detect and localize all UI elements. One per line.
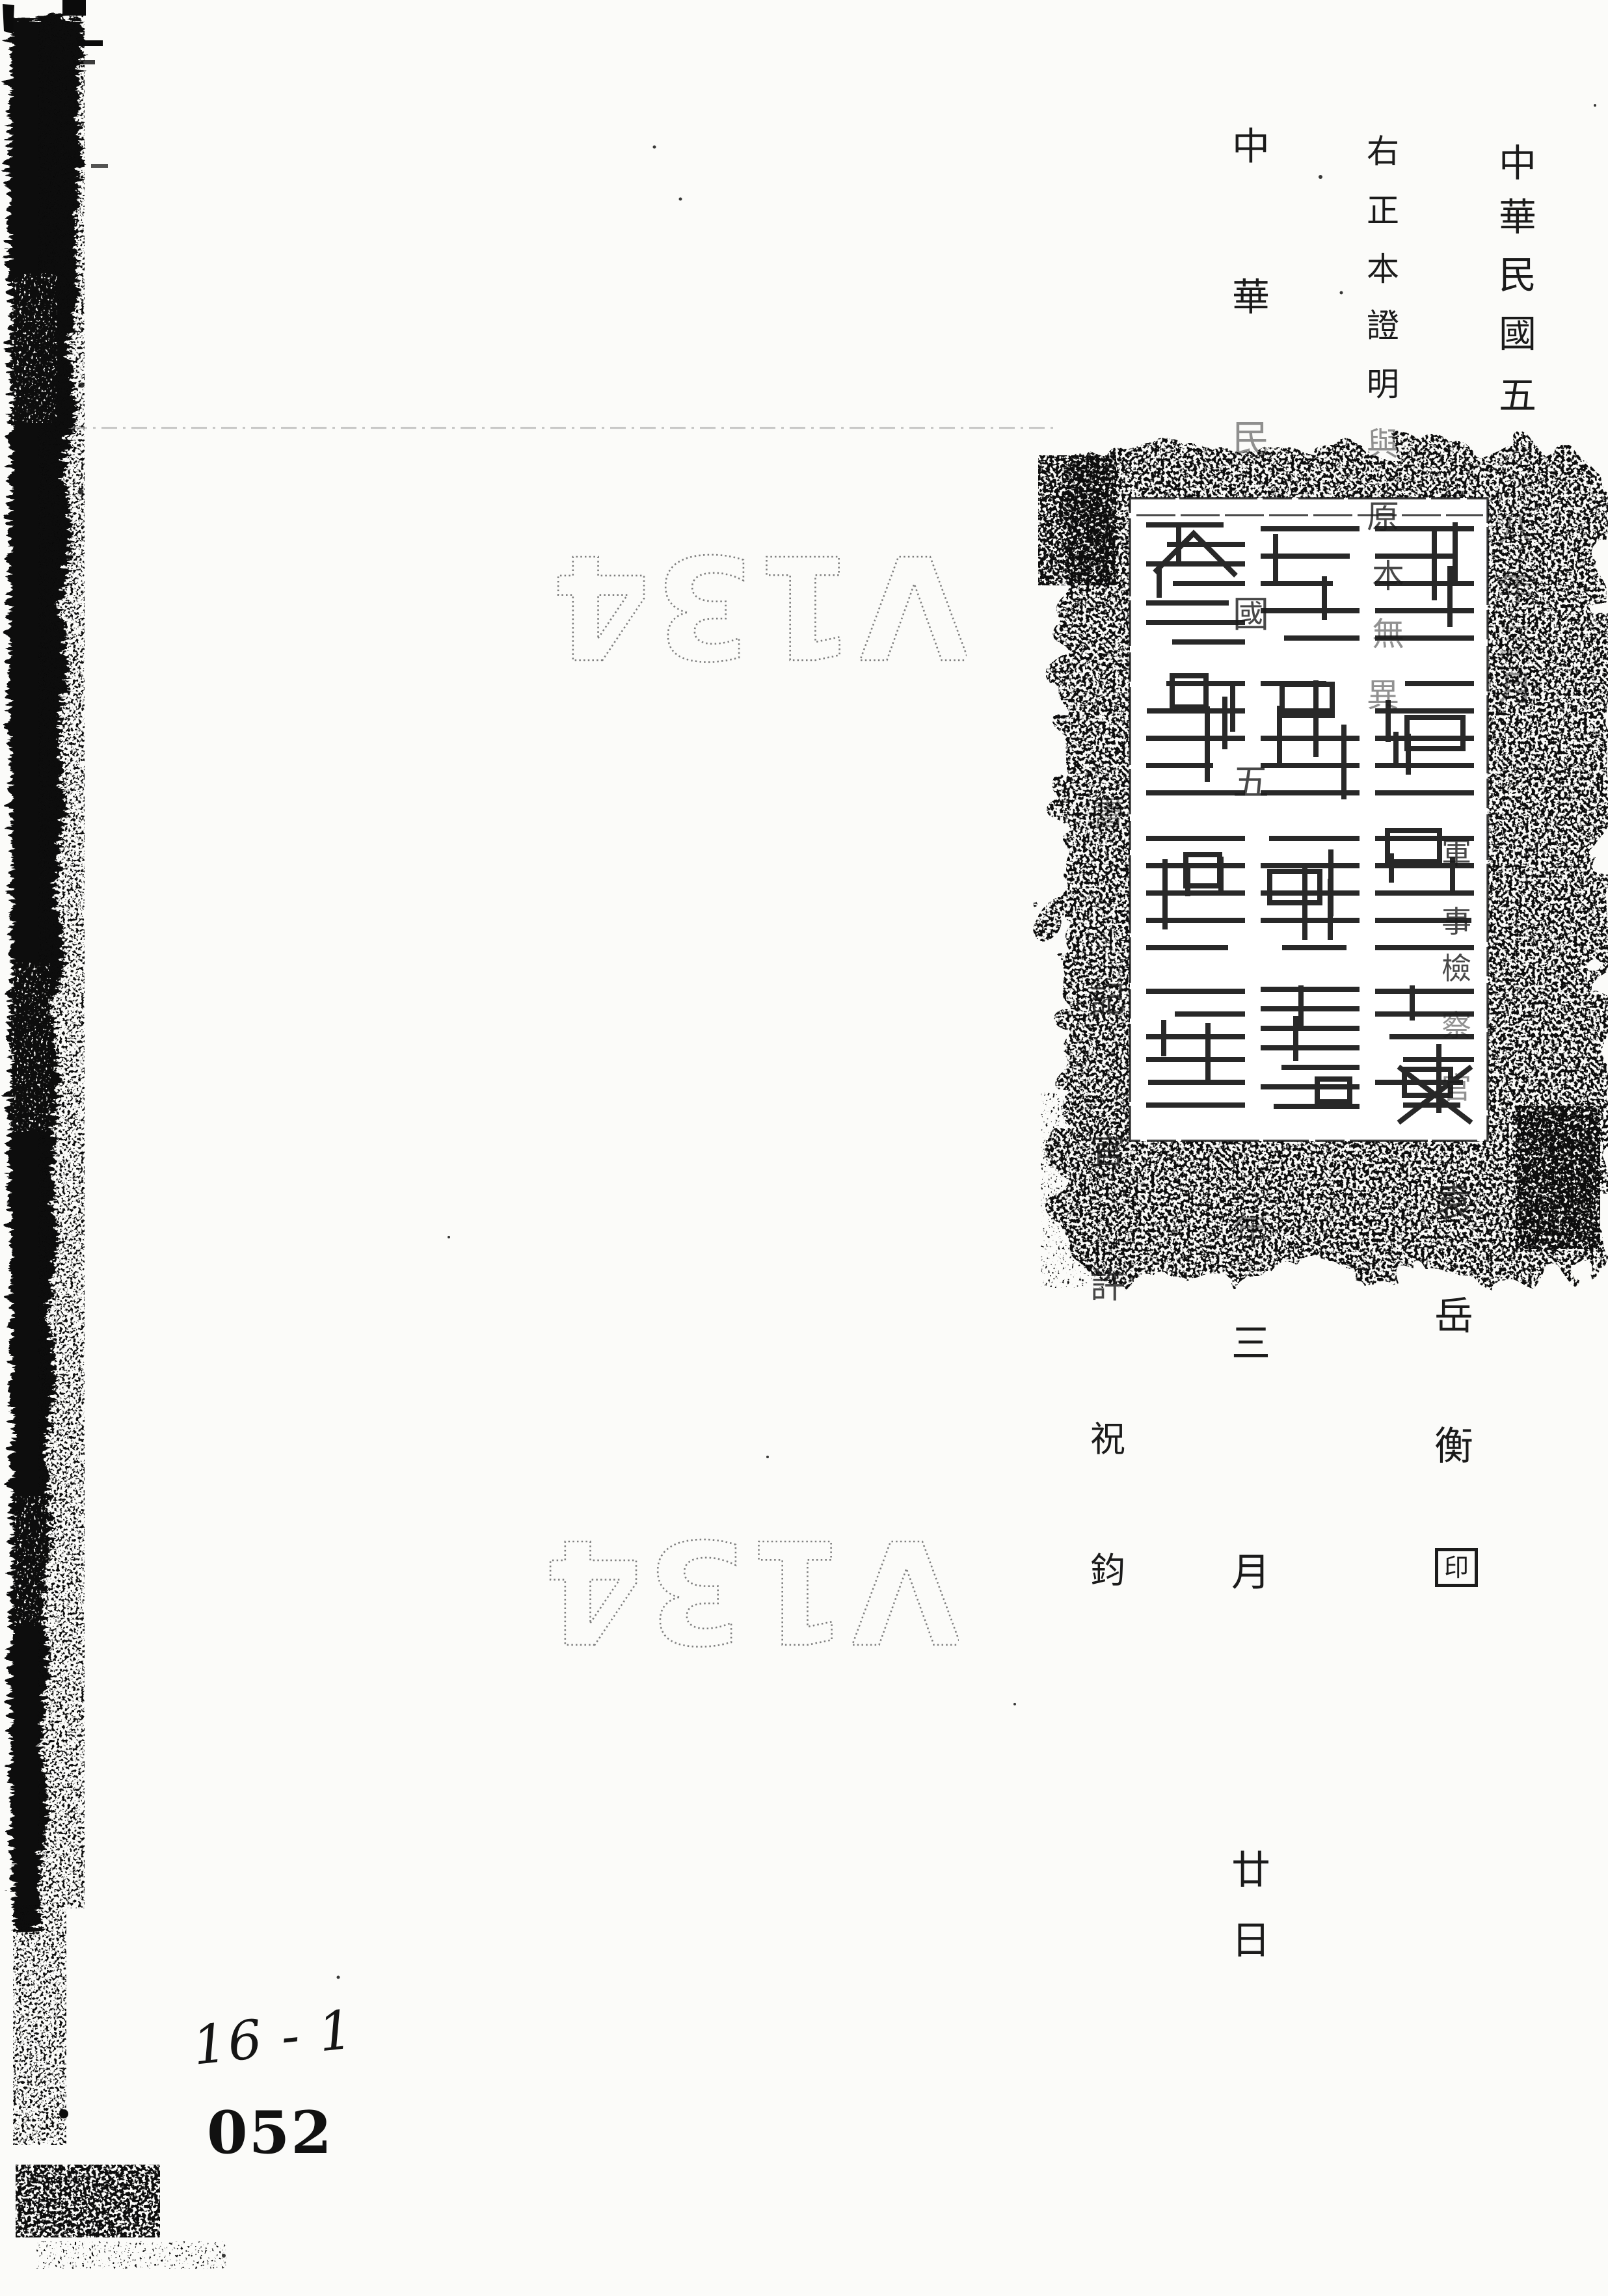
- scanned-page: V134 V134 中 華 民 國 五 八 年 三 月 右 正 本 證 明 與 …: [0, 0, 1608, 2296]
- prosecutor-title-char: 察: [1439, 1011, 1474, 1041]
- certification-char: 原: [1365, 501, 1401, 533]
- date-line-char: 年: [1496, 571, 1535, 606]
- cert-date-char: 三: [1231, 1324, 1271, 1363]
- page-number: 052: [207, 2098, 333, 2167]
- date-line-char: 五: [1498, 377, 1537, 414]
- certification-char: 本: [1365, 253, 1401, 286]
- prosecutor-name-char: 袁: [1433, 1184, 1475, 1223]
- cert-date-char: 中: [1231, 127, 1271, 165]
- prosecutor-title-char: 檢: [1439, 954, 1474, 983]
- date-line-char: 民: [1498, 256, 1537, 294]
- date-line-char: 月: [1496, 671, 1535, 706]
- clerk-line-char: 祝: [1089, 1422, 1127, 1457]
- cert-date-char: 廿: [1231, 1851, 1271, 1890]
- certification-char: 證: [1365, 310, 1401, 342]
- cert-date-char: 年: [1231, 1212, 1271, 1250]
- date-line-char: 中: [1498, 144, 1537, 182]
- prosecutor-title-char: 官: [1439, 1073, 1474, 1103]
- certification-char: 右: [1365, 135, 1401, 168]
- date-line-char: 八: [1496, 512, 1535, 547]
- clerk-line-char: 鈞: [1089, 1553, 1127, 1588]
- cert-date-char: 華: [1231, 278, 1271, 316]
- date-line-char: 國: [1498, 315, 1537, 353]
- clerk-line-char: 許: [1089, 1268, 1127, 1303]
- prosecutor-name-char: 衡: [1433, 1427, 1475, 1466]
- certification-char: 本: [1370, 560, 1406, 593]
- clerk-line-char: 書: [1089, 796, 1127, 831]
- cert-date-char: 民: [1231, 420, 1271, 458]
- name-seal-box: 印: [1435, 1548, 1478, 1587]
- name-seal-char: 印: [1444, 1555, 1469, 1580]
- cert-date-char: 國: [1231, 597, 1271, 634]
- certification-char: 與: [1365, 428, 1401, 461]
- clerk-line-char: 官: [1089, 1134, 1127, 1169]
- certification-char: 明: [1365, 368, 1401, 401]
- prosecutor-name-char: 岳: [1433, 1297, 1475, 1336]
- cert-date-char: 五: [1231, 765, 1271, 801]
- certification-char: 無: [1370, 618, 1406, 650]
- date-line-char: 三: [1496, 623, 1535, 658]
- cert-date-char: 日: [1231, 1921, 1271, 1960]
- certification-char: 異: [1365, 679, 1401, 712]
- prosecutor-title-char: 軍: [1439, 838, 1474, 868]
- prosecutor-title-char: 事: [1439, 907, 1474, 937]
- certification-char: 正: [1365, 194, 1401, 227]
- cert-date-char: 月: [1231, 1553, 1271, 1592]
- clerk-line-char: 記: [1089, 982, 1127, 1017]
- date-line-char: 華: [1498, 198, 1537, 236]
- text-layer: 中 華 民 國 五 八 年 三 月 右 正 本 證 明 與 原 本 無 異 軍 …: [0, 0, 1608, 2296]
